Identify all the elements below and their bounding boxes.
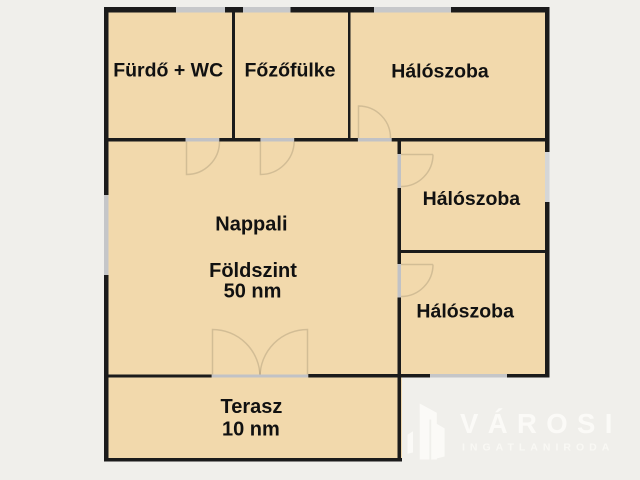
svg-text:Hálószoba: Hálószoba <box>391 60 489 82</box>
svg-text:10 nm: 10 nm <box>222 418 280 440</box>
svg-text:Hálószoba: Hálószoba <box>416 301 514 323</box>
svg-text:Fürdő + WC: Fürdő + WC <box>113 60 223 82</box>
svg-text:INGATLANIRODA: INGATLANIRODA <box>462 442 614 454</box>
svg-text:Nappali: Nappali <box>215 213 287 235</box>
svg-text:Főzőfülke: Főzőfülke <box>245 60 336 82</box>
svg-text:Terasz: Terasz <box>221 396 283 418</box>
svg-text:Földszint: Földszint <box>209 260 297 282</box>
svg-text:VÁROSI: VÁROSI <box>460 408 622 439</box>
svg-text:50 nm: 50 nm <box>224 281 282 303</box>
svg-text:Hálószoba: Hálószoba <box>423 188 521 210</box>
